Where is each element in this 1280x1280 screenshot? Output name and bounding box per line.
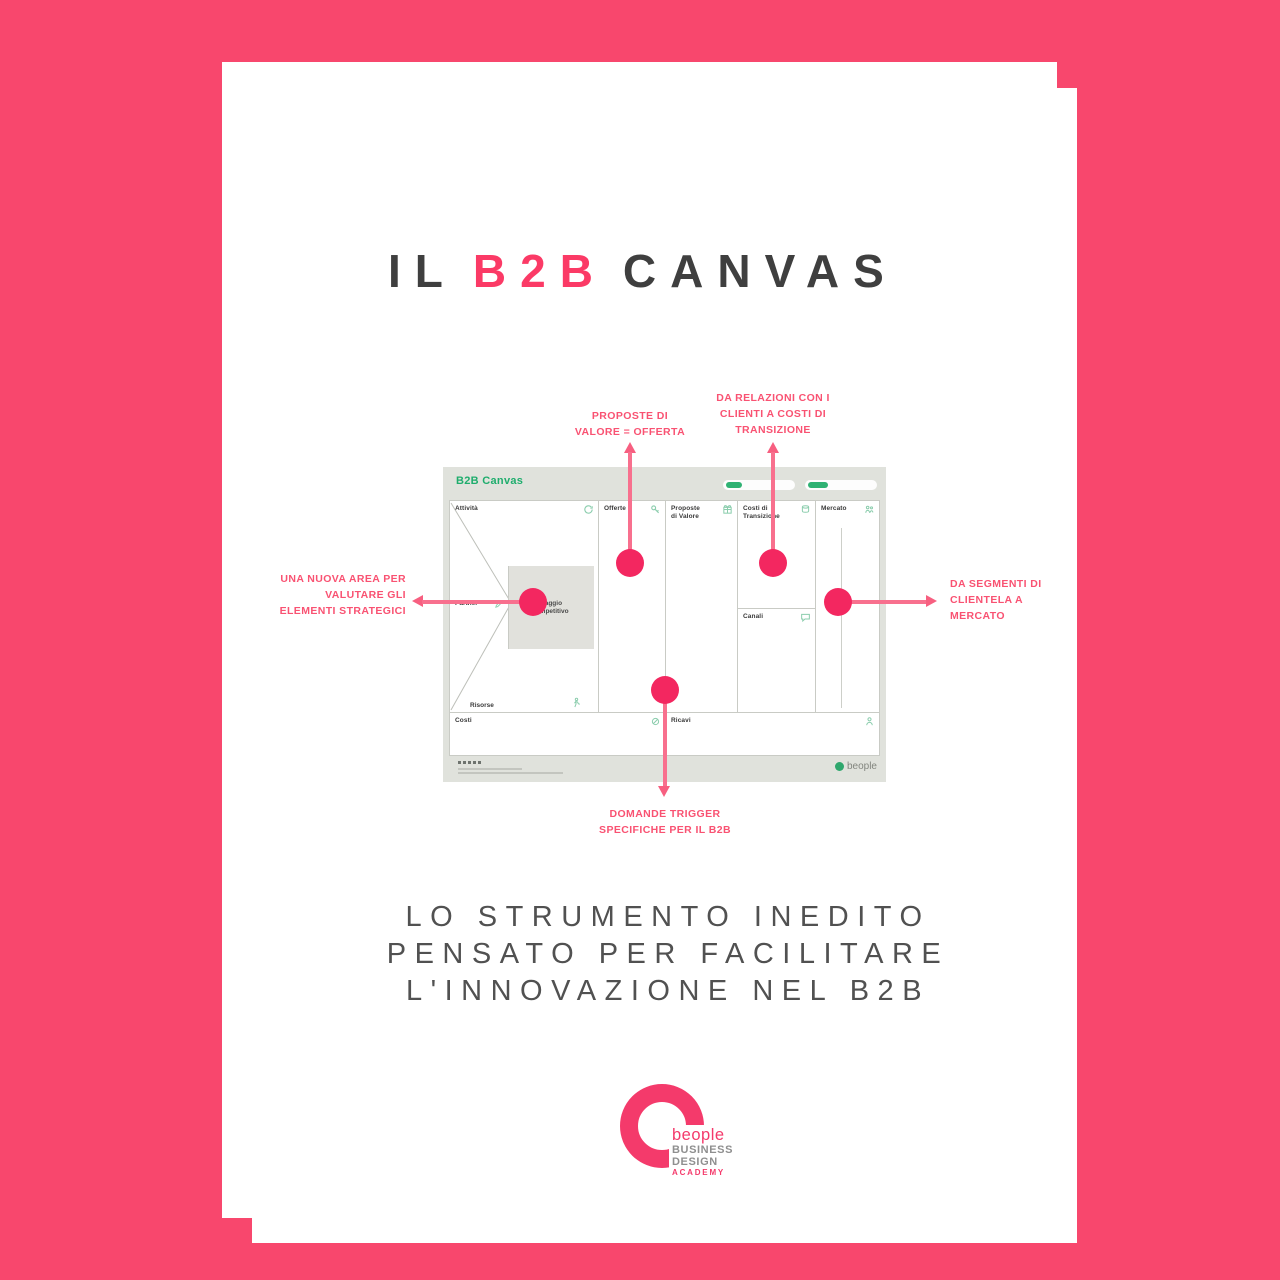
annotation-nuova-area-line3: ELEMENTI STRATEGICI (228, 603, 406, 619)
canvas-title: B2B Canvas (456, 475, 523, 487)
label-costi: Costi (450, 713, 665, 725)
connector-line-nuova-area (422, 600, 533, 604)
pin-dot-costi-transizione (759, 549, 787, 577)
key-icon (650, 504, 661, 515)
arrow-down-icon (658, 786, 670, 797)
footer-fineprint-line1 (458, 768, 522, 770)
chat-bubble-icon (800, 612, 811, 623)
section-canali: Canali (737, 608, 816, 713)
section-ricavi: Ricavi (665, 712, 880, 756)
connector-line-proposte (628, 452, 632, 563)
annotation-relazioni-line1: DA RELAZIONI CON I (683, 390, 863, 406)
label-risorse: Risorse (470, 702, 494, 710)
footer-marks (458, 761, 481, 764)
subtitle-line1: LO STRUMENTO INEDITO (250, 899, 1086, 936)
person-walking-icon (571, 697, 582, 708)
sync-icon (583, 504, 594, 515)
section-costi: Costi (449, 712, 666, 756)
annotation-relazioni-line2: CLIENTI A COSTI DI (683, 406, 863, 422)
progress-bar-1 (723, 480, 795, 490)
logo-beople: beople (672, 1127, 733, 1144)
title-il: IL (388, 245, 457, 297)
annotation-domande-line2: SPECIFICHE PER IL B2B (565, 822, 765, 838)
annotation-segmenti-line2: CLIENTELA A (950, 592, 1110, 608)
annotation-nuova-area: UNA NUOVA AREA PER VALUTARE GLI ELEMENTI… (228, 571, 406, 619)
mercato-divider-line (841, 528, 842, 708)
progress-fill-2 (808, 482, 828, 488)
annotation-nuova-area-line1: UNA NUOVA AREA PER (228, 571, 406, 587)
gift-icon (722, 504, 733, 515)
annotation-relazioni: DA RELAZIONI CON I CLIENTI A COSTI DI TR… (683, 390, 863, 438)
footer-fineprint-line2 (458, 772, 563, 774)
annotation-domande: DOMANDE TRIGGER SPECIFICHE PER IL B2B (565, 806, 765, 838)
label-ricavi: Ricavi (666, 713, 879, 725)
canvas-brand: beople (835, 761, 877, 772)
logo-business: BUSINESS (672, 1144, 733, 1156)
poster-subtitle: LO STRUMENTO INEDITO PENSATO PER FACILIT… (250, 899, 1086, 1010)
subtitle-line2: PENSATO PER FACILITARE (250, 936, 1086, 973)
pin-dot-vantaggio (519, 588, 547, 616)
annotation-segmenti-line3: MERCATO (950, 608, 1110, 624)
progress-fill-1 (726, 482, 742, 488)
annotation-segmenti-line1: DA SEGMENTI DI (950, 576, 1110, 592)
beople-logo: beople BUSINESS DESIGN ACADEMY (672, 1127, 733, 1178)
user-icon (864, 716, 875, 727)
progress-bar-2 (805, 480, 877, 490)
title-b2b: B2B (473, 245, 607, 297)
title-canvas: CANVAS (623, 245, 898, 297)
connector-line-domande (663, 690, 667, 786)
pin-dot-mercato (824, 588, 852, 616)
coins-icon (800, 504, 811, 515)
poster: { "title": { "part1": "IL", "part2": "B2… (0, 0, 1280, 1280)
logo-design: DESIGN (672, 1156, 733, 1168)
pin-dot-offerte (616, 549, 644, 577)
connector-line-relazioni (771, 452, 775, 563)
annotation-domande-line1: DOMANDE TRIGGER (565, 806, 765, 822)
logo-academy: ACADEMY (672, 1168, 733, 1178)
page-title: ILB2BCANVAS (388, 244, 914, 298)
arrow-right-icon (926, 595, 937, 607)
subtitle-line3: L'INNOVAZIONE NEL B2B (250, 973, 1086, 1010)
pin-dot-domande (651, 676, 679, 704)
canvas-brand-name: beople (847, 761, 877, 772)
annotation-nuova-area-line2: VALUTARE GLI (228, 587, 406, 603)
annotation-relazioni-line3: TRANSIZIONE (683, 422, 863, 438)
beople-circle-icon (835, 762, 844, 771)
annotation-segmenti: DA SEGMENTI DI CLIENTELA A MERCATO (950, 576, 1110, 624)
people-icon (864, 504, 875, 515)
ban-icon (650, 716, 661, 727)
